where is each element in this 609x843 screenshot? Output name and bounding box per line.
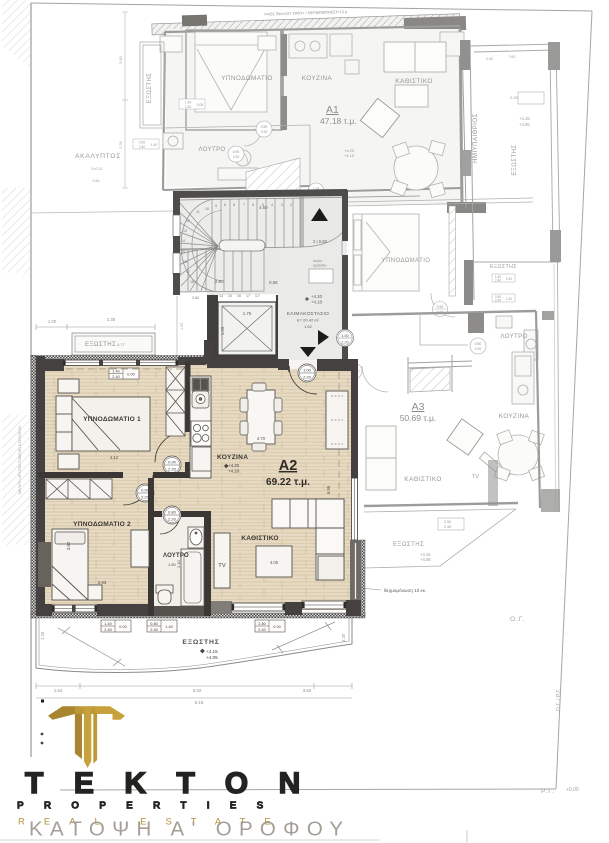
svg-text:Ρ.Γ.: Ρ.Γ. bbox=[541, 788, 555, 795]
svg-text:5: 5 bbox=[262, 203, 264, 207]
svg-text:2.20: 2.20 bbox=[168, 517, 177, 522]
svg-text:9: 9 bbox=[215, 204, 217, 208]
svg-text:A1: A1 bbox=[326, 104, 339, 116]
svg-text:ΕΞΩΣΤΗΣ: ΕΞΩΣΤΗΣ bbox=[393, 542, 424, 548]
svg-text:2.20: 2.20 bbox=[233, 155, 240, 159]
svg-text:2.20: 2.20 bbox=[341, 339, 349, 344]
svg-text:3.92: 3.92 bbox=[193, 688, 202, 693]
svg-text:+0.00: +0.00 bbox=[566, 787, 579, 793]
svg-text:+4.15: +4.15 bbox=[206, 649, 218, 654]
svg-text:14: 14 bbox=[219, 294, 223, 298]
svg-text:2.40: 2.40 bbox=[185, 105, 192, 109]
svg-text:4.77: 4.77 bbox=[117, 342, 126, 347]
svg-text:2.40: 2.40 bbox=[104, 628, 111, 632]
svg-text:6: 6 bbox=[252, 203, 254, 207]
svg-text:0.00: 0.00 bbox=[119, 625, 126, 629]
svg-text:ΥΠΝΟΔΩΜΑΤΙΟ: ΥΠΝΟΔΩΜΑΤΙΟ bbox=[221, 75, 273, 82]
svg-text:16: 16 bbox=[237, 294, 241, 298]
svg-text:1.40: 1.40 bbox=[112, 370, 119, 374]
svg-text:PROPERTIES: PROPERTIES bbox=[17, 801, 283, 812]
svg-text:ΑΚΑΛΥΠΤΟΣ: ΑΚΑΛΥΠΤΟΣ bbox=[75, 153, 121, 160]
svg-text:+4.10: +4.10 bbox=[344, 153, 355, 158]
svg-text:Ε= 20.42 m²: Ε= 20.42 m² bbox=[297, 318, 320, 323]
svg-text:2.10: 2.10 bbox=[176, 559, 181, 568]
svg-text:ΥΠΝΟΔΩΜΑΤΙΟ: ΥΠΝΟΔΩΜΑΤΙΟ bbox=[382, 258, 431, 264]
svg-text:2.60: 2.60 bbox=[215, 279, 224, 284]
svg-text:ΛΟΥΤΡΟ: ΛΟΥΤΡΟ bbox=[163, 553, 189, 559]
svg-text:1.65: 1.65 bbox=[220, 326, 225, 335]
svg-text:2.40: 2.40 bbox=[258, 628, 265, 632]
svg-text:+4.15: +4.15 bbox=[519, 116, 530, 121]
svg-text:TV: TV bbox=[218, 563, 226, 569]
svg-text:ανελκ.: ανελκ. bbox=[313, 259, 323, 263]
svg-text:2.40: 2.40 bbox=[139, 145, 146, 149]
svg-text:ΕΞΩΣΤΗΣ: ΕΞΩΣΤΗΣ bbox=[85, 342, 116, 348]
svg-text:14: 14 bbox=[181, 239, 185, 243]
svg-text:1.60: 1.60 bbox=[341, 333, 349, 338]
svg-text:2.35: 2.35 bbox=[107, 317, 116, 322]
svg-text:7.60: 7.60 bbox=[508, 55, 515, 59]
svg-text:8: 8 bbox=[224, 203, 226, 207]
svg-text:16: 16 bbox=[183, 260, 187, 264]
svg-text:2 | 0.80: 2 | 0.80 bbox=[313, 239, 328, 244]
svg-text:ΛΟΥΤΡΟ: ΛΟΥΤΡΟ bbox=[500, 334, 527, 340]
svg-text:+4.20: +4.20 bbox=[228, 463, 240, 468]
svg-text:2.40: 2.40 bbox=[495, 278, 501, 282]
svg-text:0.84: 0.84 bbox=[93, 179, 100, 183]
svg-text:1.40: 1.40 bbox=[151, 143, 158, 147]
svg-text:ΜΕΛΕΤΗ ΑΡΧΙΤΕΚΤΟΝΙΚΩΝ ΚΑΤΟΨΕΩΝ: ΜΕΛΕΤΗ ΑΡΧΙΤΕΚΤΟΝΙΚΩΝ ΚΑΤΟΨΕΩΝ bbox=[18, 425, 22, 494]
svg-text:0.58: 0.58 bbox=[269, 280, 278, 285]
svg-text:4.70: 4.70 bbox=[257, 436, 266, 441]
svg-text:1.64: 1.64 bbox=[54, 688, 63, 693]
svg-text:ΥΠΝΟΔΩΜΑΤΙΟ 2: ΥΠΝΟΔΩΜΑΤΙΟ 2 bbox=[73, 521, 131, 528]
svg-text:2.80: 2.80 bbox=[258, 622, 265, 626]
svg-text:0.00: 0.00 bbox=[273, 625, 280, 629]
svg-text:1.75: 1.75 bbox=[243, 311, 252, 316]
svg-text:ΚΟΥΖΙΝΑ: ΚΟΥΖΙΝΑ bbox=[499, 413, 530, 420]
svg-text:1.50: 1.50 bbox=[180, 323, 184, 330]
svg-text:2.40: 2.40 bbox=[150, 628, 157, 632]
svg-text:2.40: 2.40 bbox=[444, 525, 451, 529]
svg-text:3.80: 3.80 bbox=[66, 541, 71, 550]
svg-text:2.60: 2.60 bbox=[192, 296, 199, 300]
svg-text:ΕΞΩΣΤΗΣ: ΕΞΩΣΤΗΣ bbox=[490, 264, 517, 270]
svg-text:0.80: 0.80 bbox=[150, 622, 157, 626]
svg-text:69.22 τ.μ.: 69.22 τ.μ. bbox=[266, 477, 310, 488]
svg-text:2.93: 2.93 bbox=[98, 580, 107, 585]
svg-text:1.40: 1.40 bbox=[104, 622, 111, 626]
svg-text:8: 8 bbox=[233, 203, 235, 207]
svg-text:2: 2 bbox=[290, 203, 292, 207]
svg-text:1.40: 1.40 bbox=[165, 625, 172, 629]
svg-text:1.40: 1.40 bbox=[185, 101, 192, 105]
svg-text:+4.05: +4.05 bbox=[519, 122, 530, 127]
svg-text:ΥΠΝΟΔΩΜΑΤΙΟ 1: ΥΠΝΟΔΩΜΑΤΙΟ 1 bbox=[83, 416, 141, 423]
svg-text:6.95: 6.95 bbox=[326, 485, 331, 494]
svg-text:TV: TV bbox=[472, 474, 479, 480]
svg-text:17: 17 bbox=[186, 270, 190, 274]
svg-text:ΛΟΥΤΡΟ: ΛΟΥΤΡΟ bbox=[198, 147, 225, 153]
svg-text:+4.10: +4.10 bbox=[311, 300, 323, 305]
svg-text:3.62: 3.62 bbox=[303, 688, 312, 693]
svg-text:1.40: 1.40 bbox=[40, 631, 45, 640]
svg-text:2.20: 2.20 bbox=[341, 633, 346, 642]
svg-text:5.60: 5.60 bbox=[119, 56, 123, 63]
svg-text:50.69 τ.μ.: 50.69 τ.μ. bbox=[400, 413, 437, 423]
svg-text:θερμομόνωση 10 εκ.: θερμομόνωση 10 εκ. bbox=[384, 587, 426, 593]
svg-text:ΚΑΘΙΣΤΙΚΟ: ΚΑΘΙΣΤΙΚΟ bbox=[404, 476, 441, 483]
svg-text:10: 10 bbox=[205, 207, 209, 211]
svg-text:TEKTON: TEKTON bbox=[25, 767, 331, 800]
svg-text:2.20: 2.20 bbox=[510, 95, 519, 100]
svg-text:+4.05: +4.05 bbox=[206, 655, 218, 660]
svg-text:3: 3 bbox=[281, 203, 283, 207]
svg-text:0.80: 0.80 bbox=[486, 57, 493, 61]
svg-text:12: 12 bbox=[186, 219, 190, 223]
svg-text:1.52: 1.52 bbox=[304, 324, 313, 329]
svg-text:ΕΞΩΣΤΗΣ: ΕΞΩΣΤΗΣ bbox=[182, 639, 219, 646]
svg-text:4.12: 4.12 bbox=[110, 455, 119, 460]
svg-text:ΚΑΘΙΣΤΙΚΟ: ΚΑΘΙΣΤΙΚΟ bbox=[395, 78, 432, 85]
svg-text:4.00: 4.00 bbox=[270, 560, 279, 565]
svg-text:2.20: 2.20 bbox=[475, 347, 482, 351]
svg-text:2.40: 2.40 bbox=[495, 298, 501, 302]
svg-text:4: 4 bbox=[271, 203, 273, 207]
svg-text:1.00: 1.00 bbox=[48, 319, 57, 324]
svg-text:7: 7 bbox=[243, 203, 245, 207]
svg-text:0.60: 0.60 bbox=[139, 141, 146, 145]
svg-text:15: 15 bbox=[181, 250, 185, 254]
svg-text:13: 13 bbox=[183, 229, 187, 233]
svg-text:+4.20: +4.20 bbox=[311, 294, 323, 299]
svg-text:2.40: 2.40 bbox=[112, 375, 119, 379]
svg-text:0.80: 0.80 bbox=[168, 510, 177, 515]
svg-text:0.00: 0.00 bbox=[127, 373, 134, 377]
svg-text:2.50: 2.50 bbox=[444, 520, 451, 524]
svg-text:1.00: 1.00 bbox=[303, 368, 312, 373]
svg-text:9.18: 9.18 bbox=[195, 700, 204, 705]
svg-text:ΚΛΙΜΑΚΟΣΤΑΣΙΟ: ΚΛΙΜΑΚΟΣΤΑΣΙΟ bbox=[287, 311, 329, 317]
svg-text:+4.10: +4.10 bbox=[228, 469, 240, 474]
svg-text:47.18 τ.μ.: 47.18 τ.μ. bbox=[320, 116, 357, 126]
svg-text:11: 11 bbox=[196, 210, 200, 214]
svg-text:αμαξίδιο: αμαξίδιο bbox=[313, 264, 326, 268]
svg-text:0.05: 0.05 bbox=[197, 103, 204, 107]
svg-text:15: 15 bbox=[228, 294, 232, 298]
svg-text:1.40: 1.40 bbox=[506, 297, 512, 301]
svg-text:Ο.Γ.: Ο.Γ. bbox=[510, 616, 526, 623]
svg-text:ΗΜΙΥΠΑΙΘΡΙΟΣ: ΗΜΙΥΠΑΙΘΡΙΟΣ bbox=[473, 113, 479, 163]
svg-text:A2: A2 bbox=[279, 458, 298, 474]
svg-text:ΕΞΩΣΤΗΣ: ΕΞΩΣΤΗΣ bbox=[512, 144, 518, 175]
svg-text:/17: /17 bbox=[255, 294, 260, 298]
svg-text:+4.05: +4.05 bbox=[420, 557, 431, 562]
svg-text:18: 18 bbox=[190, 280, 194, 284]
svg-text:0.90: 0.90 bbox=[168, 460, 177, 465]
svg-text:δ=0.31: δ=0.31 bbox=[91, 167, 102, 171]
svg-text:2.20: 2.20 bbox=[261, 130, 268, 134]
svg-text:2.20: 2.20 bbox=[303, 375, 312, 380]
svg-text:17: 17 bbox=[246, 294, 250, 298]
svg-text:ΚΟΥΖΙΝΑ: ΚΟΥΖΙΝΑ bbox=[302, 75, 333, 82]
svg-text:ΚΟΥΖΙΝΑ: ΚΟΥΖΙΝΑ bbox=[217, 454, 248, 461]
svg-text:0.40: 0.40 bbox=[506, 277, 512, 281]
svg-text:2.20: 2.20 bbox=[168, 467, 177, 472]
svg-text:0.80: 0.80 bbox=[475, 342, 482, 346]
svg-text:0.90: 0.90 bbox=[437, 305, 444, 309]
svg-text:0.90: 0.90 bbox=[233, 150, 240, 154]
svg-text:ΚΑΘΙΣΤΙΚΟ: ΚΑΘΙΣΤΙΚΟ bbox=[241, 535, 279, 542]
svg-text:ΕΞΩΣΤΗΣ: ΕΞΩΣΤΗΣ bbox=[147, 73, 153, 104]
svg-text:ΚΑΤΟΨΗ Α' ΟΡΟΦΟΥ: ΚΑΤΟΨΗ Α' ΟΡΟΦΟΥ bbox=[29, 818, 350, 841]
svg-text:2.35: 2.35 bbox=[119, 141, 123, 148]
svg-text:0.90: 0.90 bbox=[261, 125, 268, 129]
svg-text:A3: A3 bbox=[412, 401, 425, 413]
svg-text:Ο.Γ. / Ρ.Γ.: Ο.Γ. / Ρ.Γ. bbox=[556, 688, 562, 711]
